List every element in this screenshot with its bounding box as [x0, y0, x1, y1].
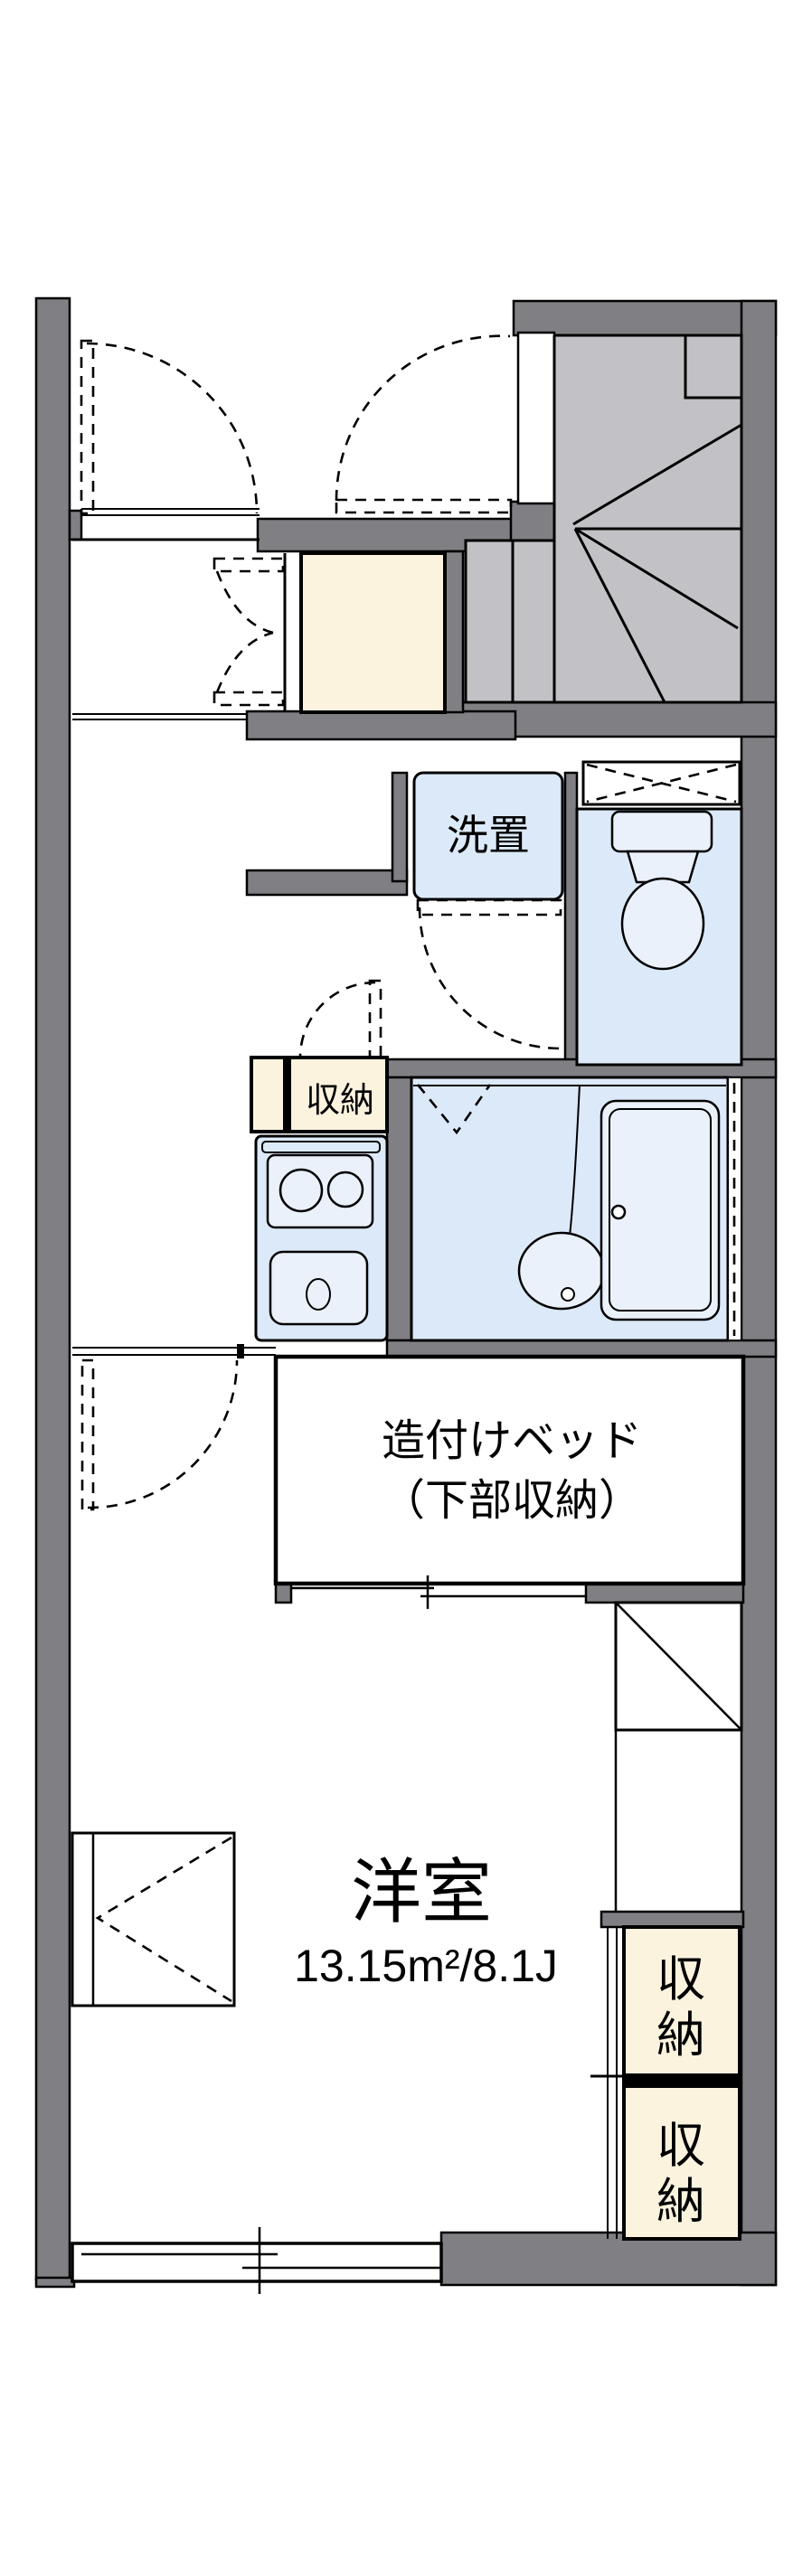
bed-label-line1: 造付けベッド — [382, 1417, 642, 1465]
bathtub-knob — [612, 1206, 625, 1218]
room-size-label: 13.15m²/8.1J — [294, 1941, 558, 1991]
closet-top-wall — [601, 1912, 743, 1927]
washroom-toilet-wall — [565, 773, 577, 1065]
floorplan-drawing: 洗置 収納 — [0, 0, 812, 2576]
hall-storage-label: 収納 — [306, 1082, 374, 1120]
bed-left-corner-block — [276, 1584, 291, 1603]
floorplan-page: 洗置 収納 — [0, 0, 812, 2576]
bed-bottom-wall — [586, 1583, 743, 1603]
entry-door-swing-arc — [87, 343, 257, 513]
stair-corner-landing — [685, 335, 741, 398]
corridor-stub-wall — [247, 870, 407, 895]
bath-bottom-wall — [387, 1340, 776, 1357]
toilet-tank — [612, 812, 712, 851]
shoe-closet-arc-bottom — [217, 633, 273, 692]
closet-lower-label-char2: 納 — [656, 2175, 705, 2229]
stove-panel — [268, 1155, 373, 1227]
washroom-door-leaf — [418, 900, 561, 915]
hall-storage-divider — [283, 1059, 291, 1130]
closet-upper-label-char1: 収 — [656, 1952, 705, 2007]
built-in-bed: 造付けベッド （下部収納） — [72, 1344, 743, 1609]
side-window-box — [72, 1833, 234, 2006]
entry-door-leaf — [81, 341, 93, 513]
corridor-door-swing-arc — [300, 982, 375, 1058]
right-exterior-wall — [741, 301, 776, 2285]
entry-bottom-wall — [247, 711, 515, 739]
bottom-window-frame — [72, 2243, 441, 2281]
toilet-room — [577, 809, 741, 1065]
stair-entry-landing — [518, 333, 554, 503]
room-entry-door-leaf — [82, 1360, 93, 1509]
toilet-bowl — [622, 879, 703, 969]
washer-space-label: 洗置 — [447, 812, 530, 859]
left-wall-bottom-cap — [36, 2278, 74, 2287]
genkan-step — [301, 553, 445, 712]
bathroom — [411, 1077, 741, 1340]
staircase — [466, 333, 741, 702]
stair-top-wall — [514, 301, 776, 335]
closet-upper-label-char2: 納 — [656, 2008, 705, 2063]
washroom-door-swing-arc — [420, 907, 561, 1048]
room-entry-door-arc — [88, 1360, 237, 1508]
bed-label-line2: （下部収納） — [382, 1477, 642, 1525]
room-name-label: 洋室 — [351, 1852, 492, 1932]
bath-washbowl-drain — [562, 1288, 574, 1301]
shoe-closet-door-leaf-top — [214, 559, 283, 571]
porch-door-swing-arc — [336, 336, 510, 501]
kitchen-backsplash — [262, 1142, 380, 1152]
kitchen: 収納 — [251, 1058, 387, 1340]
left-exterior-wall — [36, 298, 70, 2280]
shoe-closet-door-leaf-bottom — [214, 692, 283, 705]
genkan-right-wall — [445, 551, 463, 712]
kitchen-bath-wall — [387, 1077, 411, 1340]
partition-end-tick — [237, 1344, 244, 1359]
porch-door-leaf — [336, 500, 511, 512]
shoe-closet-arc-top — [217, 571, 273, 633]
corridor-door-leaf — [370, 981, 381, 1058]
washroom-left-wall — [392, 773, 407, 881]
entry-door-jamb — [70, 511, 81, 540]
closet-lower-label-char1: 収 — [656, 2119, 705, 2173]
bed-box — [276, 1357, 743, 1584]
kitchen-sink — [270, 1252, 367, 1324]
main-room: 洋室 13.15m²/8.1J 収 納 収 納 — [72, 1603, 741, 2294]
closet-divider — [622, 2073, 741, 2086]
